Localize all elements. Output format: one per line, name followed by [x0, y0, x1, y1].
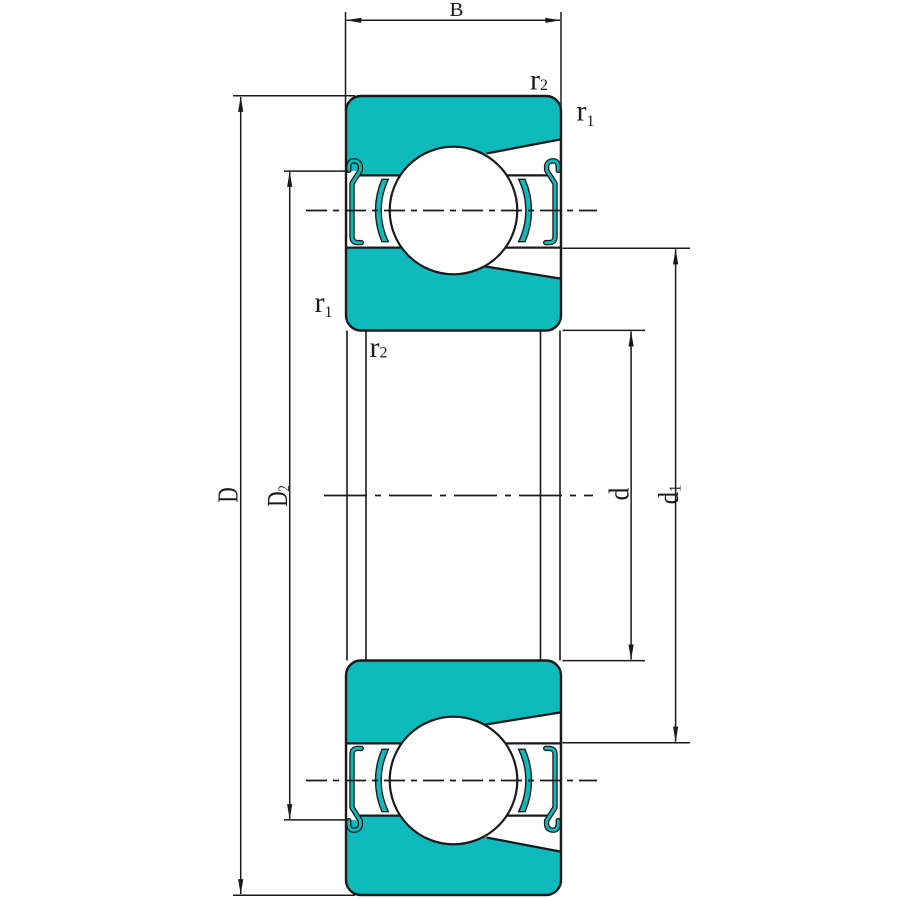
svg-text:B: B [450, 0, 464, 21]
svg-text:d: d [603, 487, 635, 500]
svg-text:D: D [212, 487, 244, 502]
